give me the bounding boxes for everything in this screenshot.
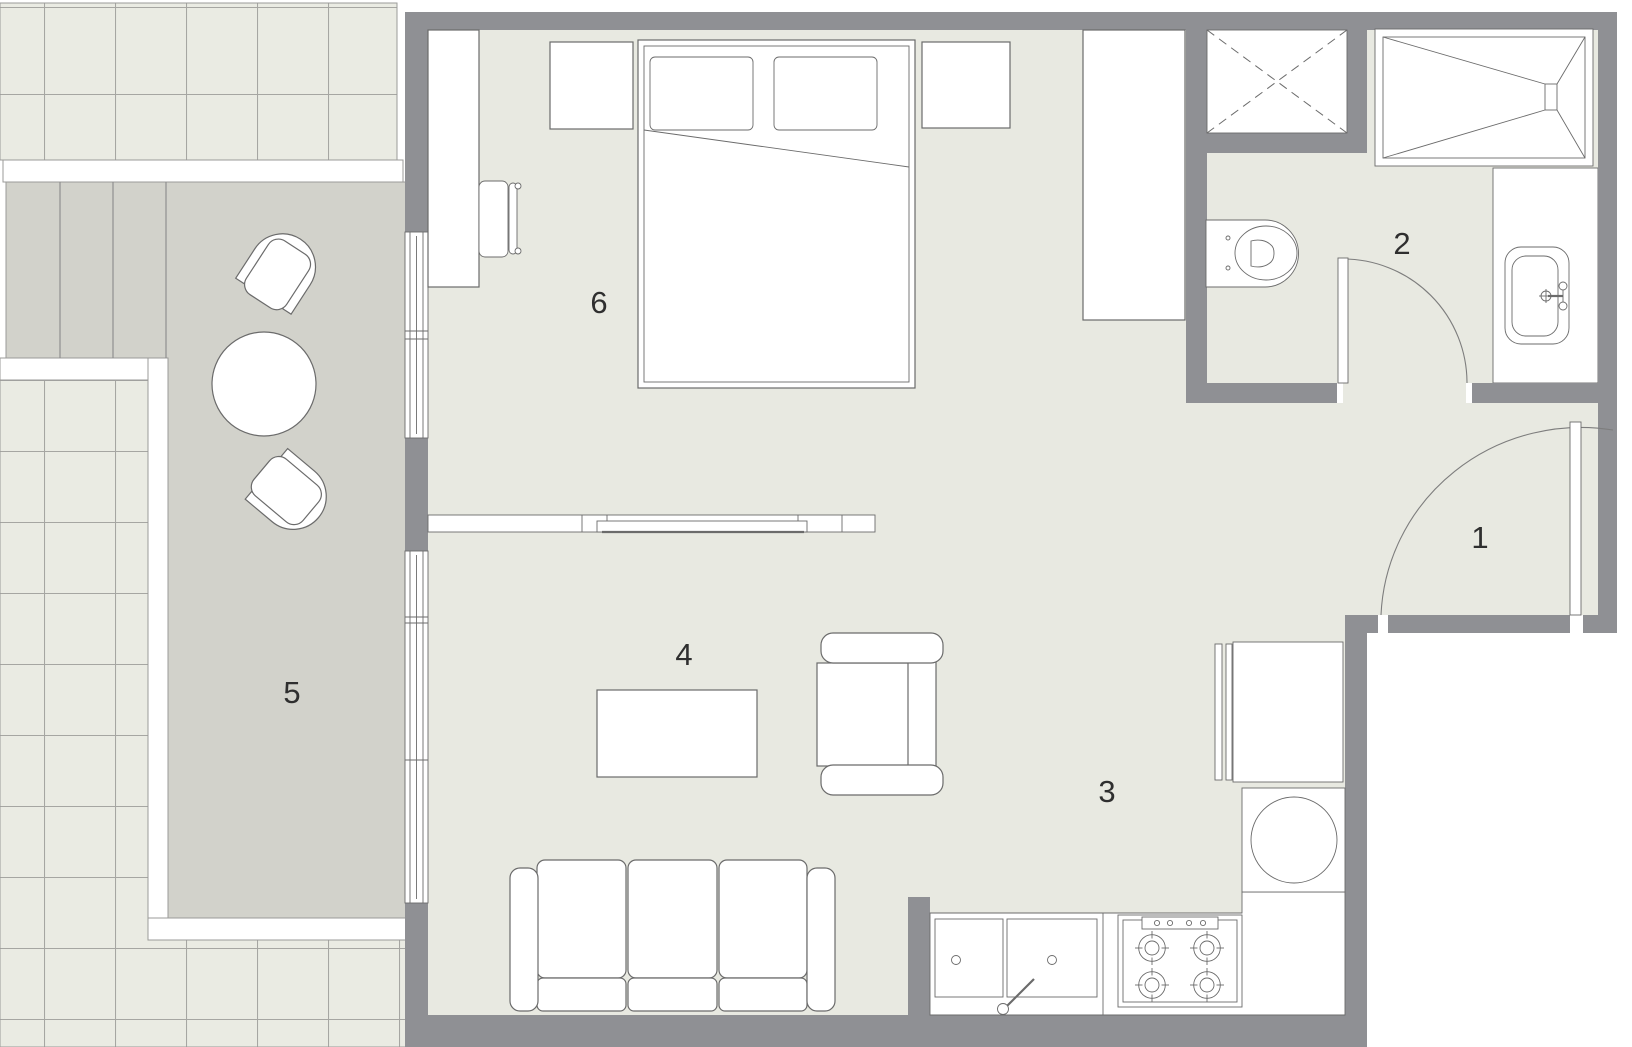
- window-living: [405, 551, 428, 903]
- jamb-entry-left: [1378, 615, 1388, 633]
- balcony-edge-band-left: [148, 358, 168, 940]
- pillow-right: [774, 57, 877, 130]
- stove-knob-panel: [1142, 917, 1218, 929]
- stove: [1118, 915, 1242, 1007]
- pillow-left: [650, 57, 753, 130]
- wall-bathroom-bottom-right: [1472, 383, 1598, 403]
- floor-plan-drawing: 1 2 3 4 5 6: [0, 0, 1632, 1047]
- washbasin: [1505, 247, 1569, 344]
- sofa: [510, 860, 835, 1011]
- sofa-cushion: [628, 860, 717, 978]
- sofa-seat-front: [628, 978, 717, 1011]
- floor-plan: 1 2 3 4 5 6: [0, 0, 1632, 1047]
- sofa-seat-front: [719, 978, 807, 1011]
- bathroom-door-leaf: [1338, 258, 1348, 383]
- wall-shaft-right: [1347, 12, 1367, 153]
- sofa-seat-front: [537, 978, 626, 1011]
- double-bed: [638, 40, 915, 388]
- terrace-tiles-top: [0, 3, 397, 160]
- room-label-kitchen: 3: [1098, 774, 1115, 809]
- tv-sideboard: [428, 515, 875, 532]
- shaft: [1207, 30, 1347, 133]
- wall-top: [407, 12, 1617, 30]
- room-label-bathroom: 2: [1393, 226, 1410, 261]
- shower: [1375, 29, 1593, 166]
- balcony-edge-band-stairs: [0, 358, 150, 380]
- wall-left-1: [405, 12, 428, 232]
- desk: [428, 30, 479, 287]
- wardrobe: [1083, 30, 1185, 320]
- room-label-entrance: 1: [1471, 520, 1488, 555]
- sofa-cushion: [537, 860, 626, 978]
- wall-left-2: [405, 438, 428, 551]
- coffee-table: [597, 690, 757, 777]
- bathroom-door-opening: [1343, 383, 1466, 403]
- wall-bathroom-left: [1186, 30, 1207, 403]
- jamb-bath-left: [1337, 383, 1343, 403]
- balcony-edge-band-top: [3, 160, 403, 182]
- desk-chair: [479, 181, 521, 257]
- armchair: [817, 633, 943, 795]
- wall-bottom: [407, 1015, 1367, 1047]
- toilet: [1206, 220, 1299, 287]
- jamb-entry-right: [1570, 615, 1583, 633]
- sofa-arm-right: [807, 868, 835, 1011]
- balcony-table: [212, 332, 316, 436]
- wall-right: [1598, 30, 1617, 633]
- entrance-door-leaf: [1570, 422, 1581, 615]
- wall-bathroom-bottom-left: [1186, 383, 1337, 403]
- window-bedroom: [405, 232, 428, 438]
- wall-kitchen-right: [1345, 615, 1367, 1047]
- nightstand-left: [550, 42, 633, 129]
- wall-kitchen-stub: [908, 897, 930, 1017]
- sofa-arm-left: [510, 868, 538, 1011]
- room-label-balcony: 5: [283, 675, 300, 710]
- refrigerator: [1215, 642, 1343, 782]
- balcony-edge-band-bottom: [148, 918, 407, 940]
- room-label-bedroom: 6: [590, 285, 607, 320]
- nightstand-right: [922, 42, 1010, 128]
- washing-machine: [1242, 788, 1345, 892]
- sofa-cushion: [719, 860, 807, 978]
- wall-shaft-bottom: [1186, 133, 1367, 153]
- jamb-bath-right: [1466, 383, 1472, 403]
- tv: [597, 521, 807, 532]
- room-label-living: 4: [675, 637, 692, 672]
- entrance-floor: [1186, 403, 1598, 615]
